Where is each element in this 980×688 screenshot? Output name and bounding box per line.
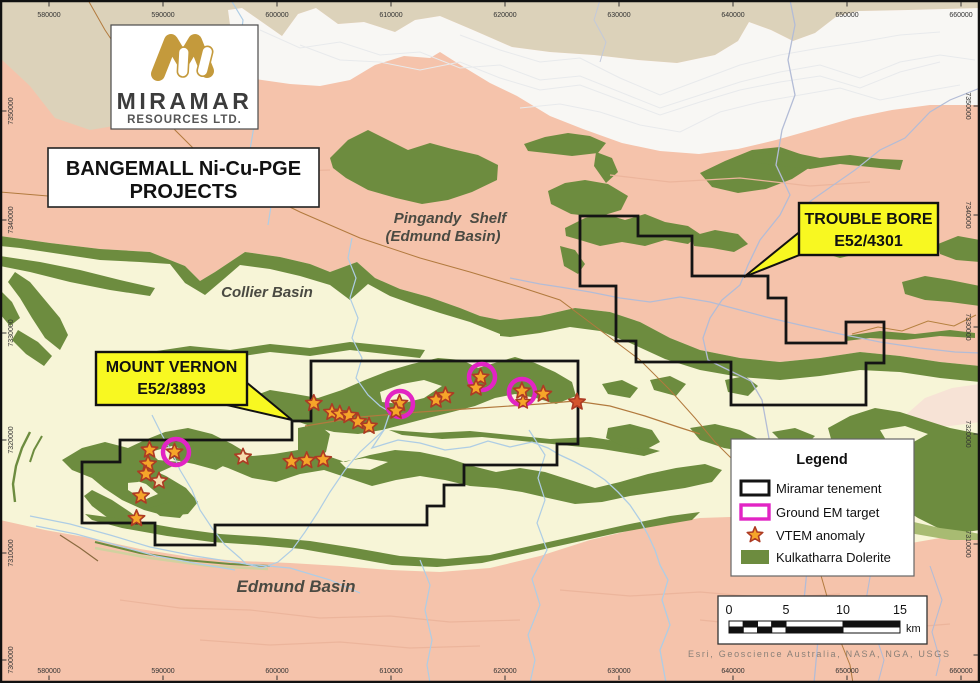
svg-text:630000: 630000 <box>607 12 630 19</box>
svg-text:Kulkatharra Dolerite: Kulkatharra Dolerite <box>776 550 891 565</box>
svg-text:BANGEMALL Ni-Cu-PGE: BANGEMALL Ni-Cu-PGE <box>66 158 301 180</box>
svg-text:610000: 610000 <box>379 12 402 19</box>
svg-text:7320000: 7320000 <box>8 426 15 453</box>
svg-text:600000: 600000 <box>265 12 288 19</box>
svg-text:Esri, Geoscience Australia, NA: Esri, Geoscience Australia, NASA, NGA, U… <box>688 649 951 659</box>
svg-text:590000: 590000 <box>151 12 174 19</box>
svg-text:640000: 640000 <box>721 668 744 675</box>
svg-text:650000: 650000 <box>835 668 858 675</box>
svg-text:(Edmund Basin): (Edmund Basin) <box>386 228 501 245</box>
svg-text:Collier Basin: Collier Basin <box>221 284 313 301</box>
svg-text:Pingandy Shelf: Pingandy Shelf <box>394 210 509 227</box>
svg-text:7300000: 7300000 <box>8 646 15 673</box>
svg-text:640000: 640000 <box>721 12 744 19</box>
svg-text:630000: 630000 <box>607 668 630 675</box>
svg-text:E52/3893: E52/3893 <box>137 381 206 398</box>
svg-text:610000: 610000 <box>379 668 402 675</box>
svg-text:660000: 660000 <box>949 668 972 675</box>
svg-text:660000: 660000 <box>949 12 972 19</box>
svg-text:Legend: Legend <box>796 452 848 468</box>
svg-text:620000: 620000 <box>493 668 516 675</box>
svg-text:620000: 620000 <box>493 12 516 19</box>
svg-text:7340000: 7340000 <box>8 206 15 233</box>
svg-text:7310000: 7310000 <box>8 539 15 566</box>
svg-text:7340000: 7340000 <box>964 201 971 228</box>
svg-text:7350000: 7350000 <box>8 97 15 124</box>
svg-text:Ground EM target: Ground EM target <box>776 505 880 520</box>
svg-text:km: km <box>906 623 921 635</box>
svg-text:PROJECTS: PROJECTS <box>130 181 238 203</box>
svg-text:TROUBLE BORE: TROUBLE BORE <box>805 211 933 228</box>
svg-text:VTEM anomaly: VTEM anomaly <box>776 528 865 543</box>
svg-text:MOUNT VERNON: MOUNT VERNON <box>106 359 238 376</box>
svg-text:7330000: 7330000 <box>964 313 971 340</box>
svg-text:10: 10 <box>836 603 850 617</box>
svg-text:7330000: 7330000 <box>8 319 15 346</box>
svg-text:Miramar tenement: Miramar tenement <box>776 481 882 496</box>
svg-text:580000: 580000 <box>37 668 60 675</box>
svg-text:7320000: 7320000 <box>964 420 971 447</box>
svg-text:580000: 580000 <box>37 12 60 19</box>
svg-text:MIRAMAR: MIRAMAR <box>117 88 253 114</box>
svg-text:7310000: 7310000 <box>964 530 971 557</box>
svg-text:0: 0 <box>726 603 733 617</box>
svg-text:15: 15 <box>893 603 907 617</box>
svg-text:5: 5 <box>783 603 790 617</box>
svg-text:650000: 650000 <box>835 12 858 19</box>
svg-text:7350000: 7350000 <box>964 92 971 119</box>
svg-text:RESOURCES LTD.: RESOURCES LTD. <box>127 114 242 126</box>
svg-text:590000: 590000 <box>151 668 174 675</box>
svg-text:E52/4301: E52/4301 <box>834 233 903 250</box>
svg-text:Edmund Basin: Edmund Basin <box>236 577 355 596</box>
svg-text:600000: 600000 <box>265 668 288 675</box>
